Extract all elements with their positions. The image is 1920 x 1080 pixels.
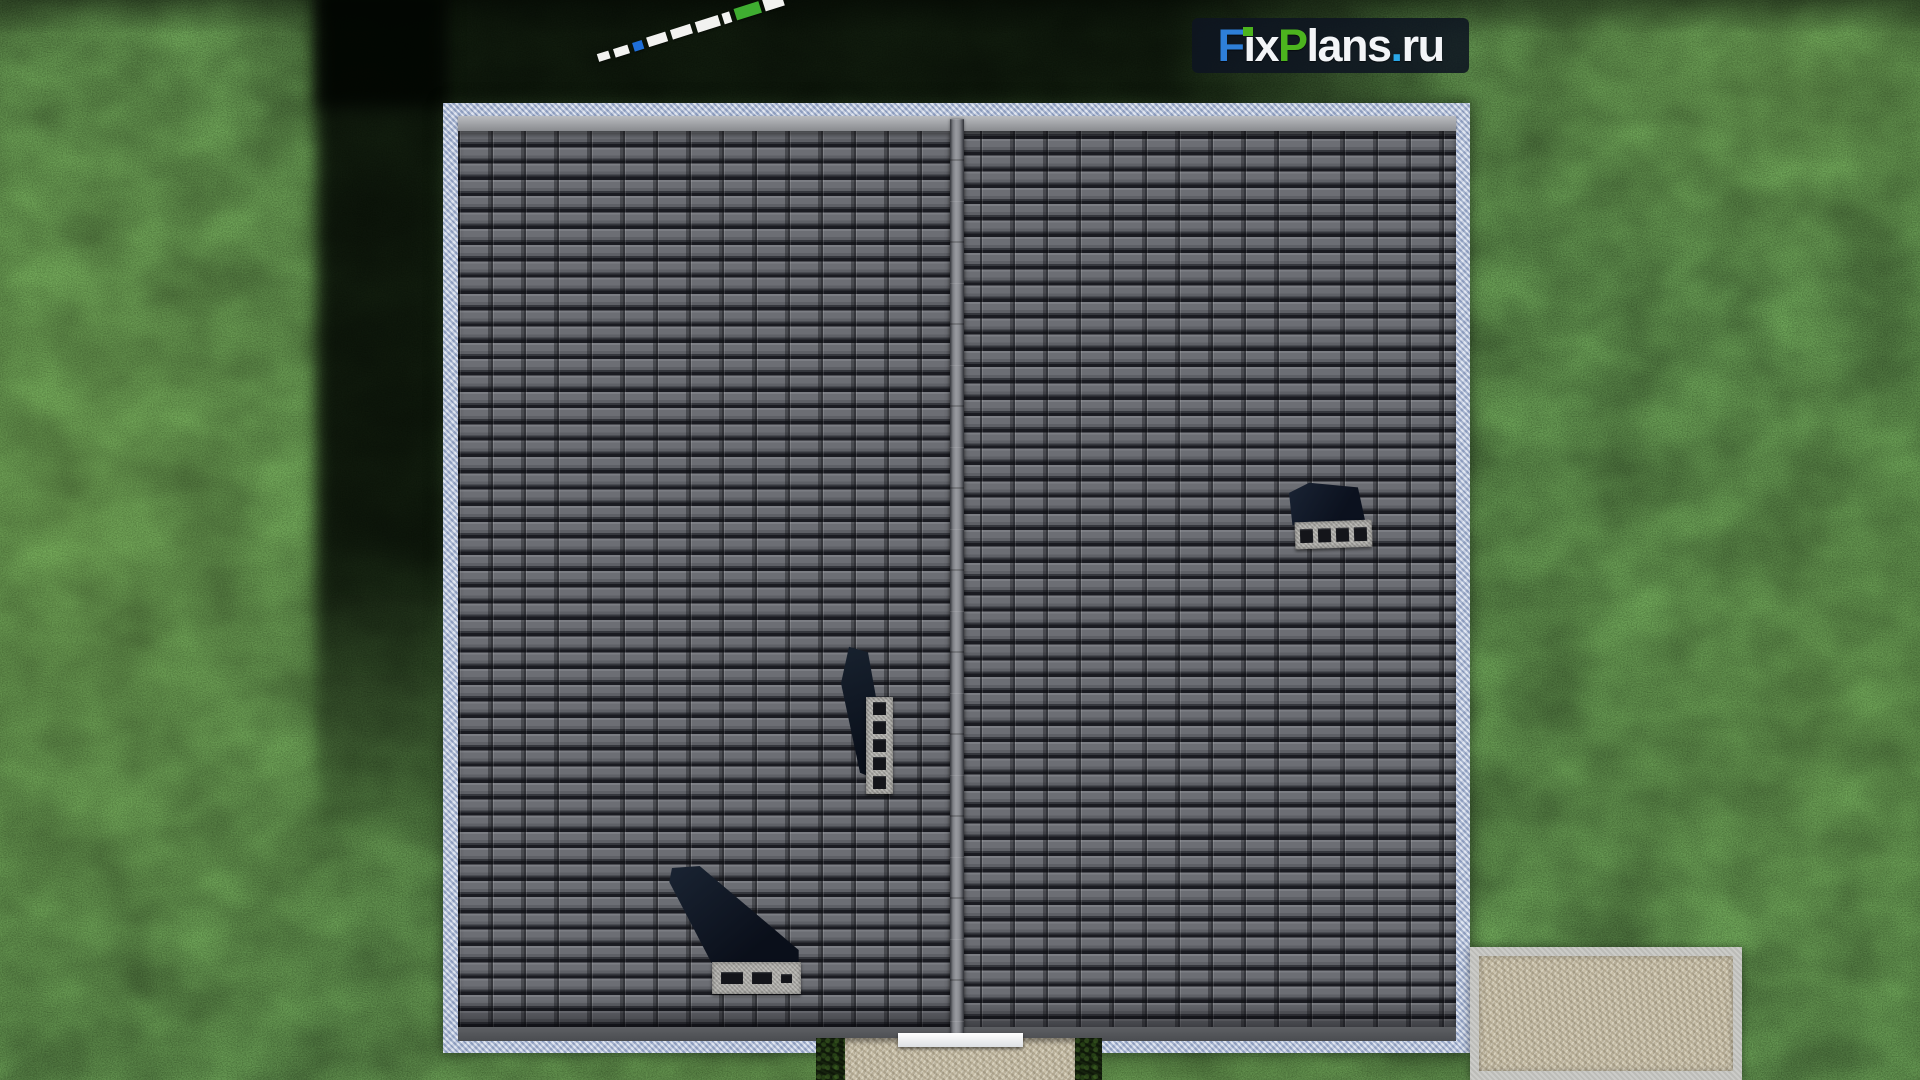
terrace-paving bbox=[1479, 956, 1733, 1071]
flue-hole bbox=[873, 739, 886, 752]
house-roof bbox=[443, 103, 1470, 1053]
flue-hole bbox=[873, 757, 886, 770]
logo-dot: . bbox=[1391, 18, 1402, 73]
cast-shadow-left bbox=[316, 0, 448, 890]
logo-letters: lans bbox=[1307, 18, 1391, 73]
dash-segment-blue bbox=[632, 40, 644, 52]
chimney-cap bbox=[1295, 520, 1373, 550]
flue-hole bbox=[1300, 528, 1313, 542]
logo-tld: ru bbox=[1402, 18, 1444, 73]
flue-hole bbox=[873, 702, 886, 715]
flue-hole bbox=[873, 776, 886, 789]
aerial-house-render: { "watermark": { "site_name": "FixPlans.… bbox=[0, 0, 1920, 1080]
flue-hole bbox=[873, 721, 886, 734]
chimney-cap bbox=[712, 962, 801, 994]
entrance-step bbox=[898, 1033, 1023, 1047]
flue-hole bbox=[721, 972, 743, 984]
fixplans-watermark-logo: F i x P lans . ru bbox=[1192, 18, 1469, 73]
flue-hole bbox=[1354, 526, 1367, 540]
logo-letter: x bbox=[1254, 18, 1278, 73]
flue-hole bbox=[781, 974, 792, 983]
flue-hole bbox=[1336, 527, 1349, 541]
logo-letter: P bbox=[1278, 18, 1307, 73]
dash-segment bbox=[721, 11, 732, 24]
flue-hole bbox=[752, 972, 772, 984]
chimney-cap bbox=[866, 697, 893, 794]
bush bbox=[816, 1038, 845, 1080]
bush bbox=[1075, 1038, 1102, 1080]
logo-letter: F bbox=[1217, 18, 1243, 73]
flue-hole bbox=[1318, 528, 1331, 542]
roof-ridge-cap bbox=[950, 119, 964, 1044]
logo-letter: i bbox=[1243, 18, 1254, 73]
roof-slope-right bbox=[964, 131, 1456, 1027]
dash-segment bbox=[597, 51, 611, 62]
paved-terrace bbox=[1470, 947, 1742, 1080]
